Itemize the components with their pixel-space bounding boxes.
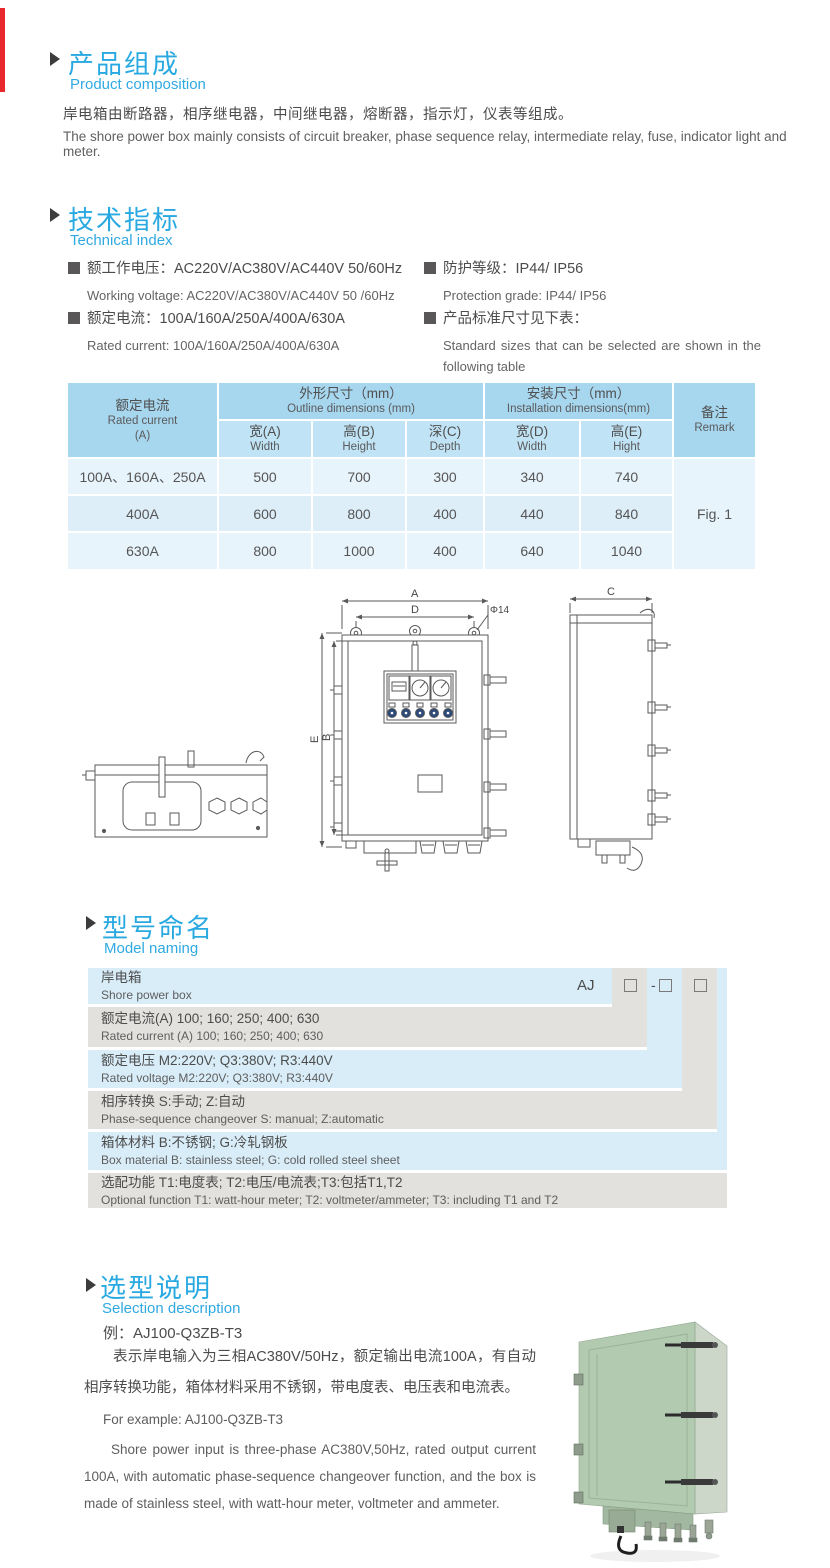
- table-row-cell: 740: [581, 459, 672, 494]
- section-subtitle-model-naming: Model naming: [104, 940, 198, 957]
- model-row-shore-power-box: 岸电箱 Shore power box: [88, 968, 612, 1004]
- left-latches: [330, 686, 342, 831]
- code-box-icon: [659, 979, 672, 992]
- size-table-subheader: 高(B)Height: [313, 421, 405, 457]
- size-table-header-installation: 安装尺寸（mm） Installation dimensions(mm): [485, 383, 672, 419]
- size-table-header-outline: 外形尺寸（mm） Outline dimensions (mm): [219, 383, 483, 419]
- spec-standard-sizes: 产品标准尺寸见下表： Standard sizes that can be se…: [424, 307, 764, 377]
- table-row-cell: 340: [485, 459, 579, 494]
- selection-example-zh: 例：AJ100-Q3ZB-T3: [103, 1322, 242, 1343]
- spec-zh-label: 防护等级：IP44/ IP56: [443, 257, 583, 278]
- section-subtitle-selection: Selection description: [102, 1300, 240, 1317]
- catalog-page: 产品组成 Product composition 岸电箱由断路器，相序继电器，中…: [0, 0, 830, 1568]
- size-table-subheader: 宽(A)Width: [219, 421, 311, 457]
- selection-body-zh: 表示岸电输入为三相AC380V/50Hz，额定输出电流100A，有自动相序转换功…: [84, 1342, 536, 1404]
- table-row-cell: 800: [219, 533, 311, 569]
- model-naming-table: 岸电箱 Shore power box 额定电流(A) 100; 160; 25…: [88, 968, 727, 1208]
- size-table-subheader: 宽(D)Width: [485, 421, 579, 457]
- spec-rated-current: 额定电流：100A/160A/250A/400A/630A Rated curr…: [68, 307, 420, 356]
- composition-text-en: The shore power box mainly consists of c…: [63, 129, 803, 159]
- svg-text:C: C: [607, 586, 615, 598]
- svg-text:E: E: [309, 736, 321, 743]
- table-row-cell: 500: [219, 459, 311, 494]
- bullet-square-icon: [68, 312, 80, 324]
- section-arrow-icon: [50, 52, 60, 66]
- size-table-subheader: 高(E)Hight: [581, 421, 672, 457]
- model-row-box-material: 箱体材料 B:不锈钢; G:冷轧钢板 Box material B: stain…: [88, 1132, 727, 1170]
- spec-en-label: Protection grade: IP44/ IP56: [443, 285, 764, 306]
- size-table: 额定电流 Rated current (A) 外形尺寸（mm） Outline …: [68, 383, 755, 569]
- model-prefix: AJ: [577, 977, 595, 994]
- table-row-cell: 440: [485, 496, 579, 531]
- size-table-header-remark: 备注 Remark: [674, 383, 755, 457]
- table-row-cell: 400: [407, 533, 483, 569]
- spec-working-voltage: 额工作电压：AC220V/AC380V/AC440V 50/60Hz Worki…: [68, 257, 420, 306]
- technical-drawing: A D Φ14 E B: [80, 585, 680, 880]
- section-arrow-icon: [86, 1278, 96, 1292]
- size-table-header-rated-current: 额定电流 Rated current (A): [68, 383, 217, 457]
- bullet-square-icon: [68, 262, 80, 274]
- model-row-rated-voltage: 额定电压 M2:220V; Q3:380V; R3:440V Rated vol…: [88, 1050, 682, 1088]
- bullet-square-icon: [424, 262, 436, 274]
- code-column: [717, 968, 727, 1132]
- drawing-front-view: A D Φ14 E B: [309, 588, 510, 871]
- table-row-cell: 400: [407, 496, 483, 531]
- table-row-cell: 600: [219, 496, 311, 531]
- page-edge-tab: [0, 8, 5, 92]
- section-arrow-icon: [86, 916, 96, 930]
- product-photo: [545, 1298, 805, 1568]
- section-subtitle-technical: Technical index: [70, 232, 173, 249]
- spec-protection-grade: 防护等级：IP44/ IP56 Protection grade: IP44/ …: [424, 257, 764, 306]
- spec-en-label: Standard sizes that can be selected are …: [443, 335, 761, 377]
- code-dash: -: [651, 977, 656, 993]
- composition-text-zh: 岸电箱由断路器，相序继电器，中间继电器，熔断器，指示灯，仪表等组成。: [63, 103, 783, 124]
- section-arrow-icon: [50, 208, 60, 222]
- table-row-cell: 630A: [68, 533, 217, 569]
- svg-text:Φ14: Φ14: [490, 605, 510, 616]
- code-box-icon: [694, 979, 707, 992]
- table-row-cell: 400A: [68, 496, 217, 531]
- table-row-cell: 1000: [313, 533, 405, 569]
- table-remark-cell: Fig. 1: [674, 459, 755, 569]
- table-row-cell: 800: [313, 496, 405, 531]
- drawing-side-view: C: [570, 586, 671, 870]
- svg-text:A: A: [411, 588, 419, 600]
- code-box-icon: [624, 979, 637, 992]
- drawing-bottom-view: [82, 751, 267, 837]
- table-row-cell: 640: [485, 533, 579, 569]
- size-table-subheader: 深(C)Depth: [407, 421, 483, 457]
- selection-example-en: For example: AJ100-Q3ZB-T3: [103, 1412, 283, 1427]
- svg-text:D: D: [411, 604, 419, 616]
- spec-zh-label: 额工作电压：AC220V/AC380V/AC440V 50/60Hz: [87, 257, 402, 278]
- model-row-rated-current: 额定电流(A) 100; 160; 250; 400; 630 Rated cu…: [88, 1007, 647, 1047]
- model-row-phase-sequence: 相序转换 S:手动; Z:自动 Phase-sequence changeove…: [88, 1091, 717, 1129]
- model-row-optional-function: 选配功能 T1:电度表; T2:电压/电流表;T3:包括T1,T2 Option…: [88, 1173, 727, 1208]
- spec-en-label: Rated current: 100A/160A/250A/400A/630A: [87, 335, 420, 356]
- table-row-cell: 840: [581, 496, 672, 531]
- selection-body-en: Shore power input is three-phase AC380V,…: [84, 1436, 536, 1517]
- table-row-cell: 100A、160A、250A: [68, 459, 217, 494]
- table-row-cell: 1040: [581, 533, 672, 569]
- spec-zh-label: 额定电流：100A/160A/250A/400A/630A: [87, 307, 345, 328]
- table-row-cell: 300: [407, 459, 483, 494]
- bullet-square-icon: [424, 312, 436, 324]
- section-subtitle-composition: Product composition: [70, 76, 206, 93]
- table-row-cell: 700: [313, 459, 405, 494]
- spec-zh-label: 产品标准尺寸见下表：: [443, 307, 588, 328]
- spec-en-label: Working voltage: AC220V/AC380V/AC440V 50…: [87, 285, 420, 306]
